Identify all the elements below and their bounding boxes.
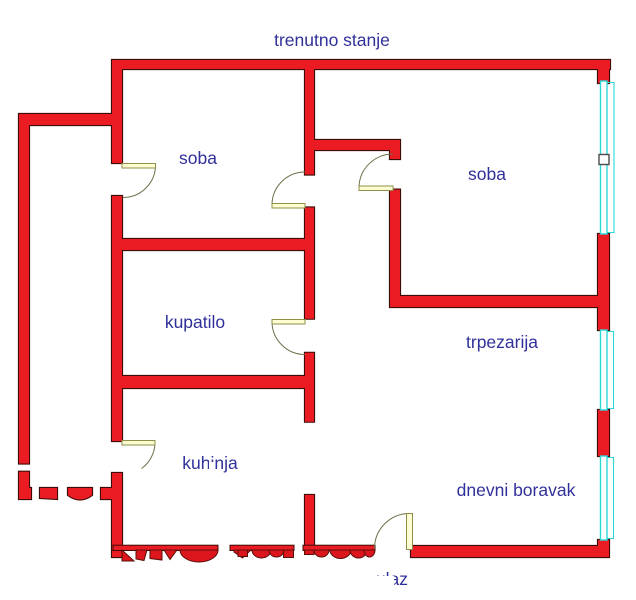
svg-text:soba: soba (468, 164, 506, 184)
svg-text:kupatilo: kupatilo (165, 312, 225, 332)
svg-text:dnevni boravak: dnevni boravak (457, 480, 576, 500)
svg-text:soba: soba (179, 148, 217, 168)
svg-text:trpezarija: trpezarija (466, 332, 538, 352)
svg-text:trenutno stanje: trenutno stanje (274, 30, 390, 50)
